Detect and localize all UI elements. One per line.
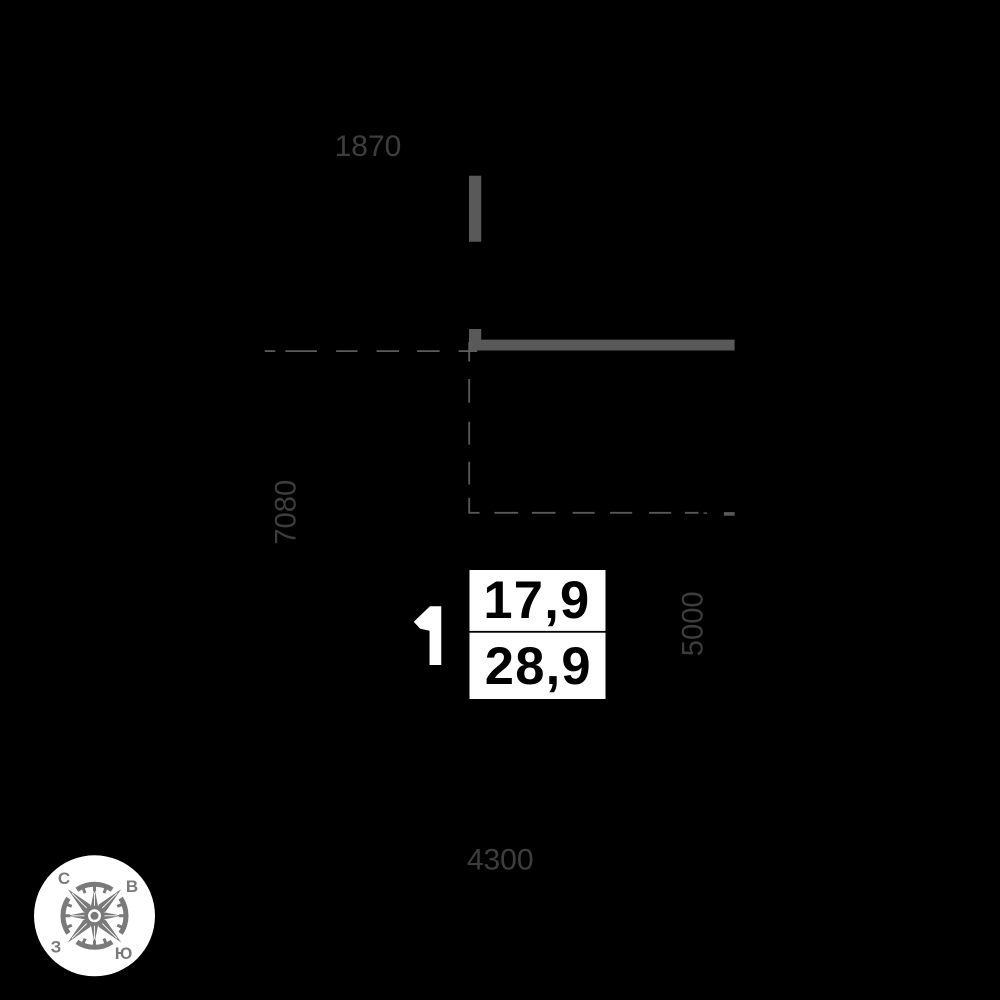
svg-text:С: С (58, 869, 70, 888)
svg-text:4300: 4300 (467, 843, 534, 876)
svg-text:17,9: 17,9 (483, 571, 590, 630)
svg-text:28,9: 28,9 (485, 637, 592, 696)
svg-text:В: В (126, 877, 138, 896)
svg-text:1870: 1870 (335, 130, 402, 163)
svg-text:7080: 7080 (270, 480, 302, 545)
svg-text:5000: 5000 (677, 591, 709, 656)
svg-text:З: З (51, 938, 62, 957)
svg-text:Ю: Ю (115, 944, 133, 963)
